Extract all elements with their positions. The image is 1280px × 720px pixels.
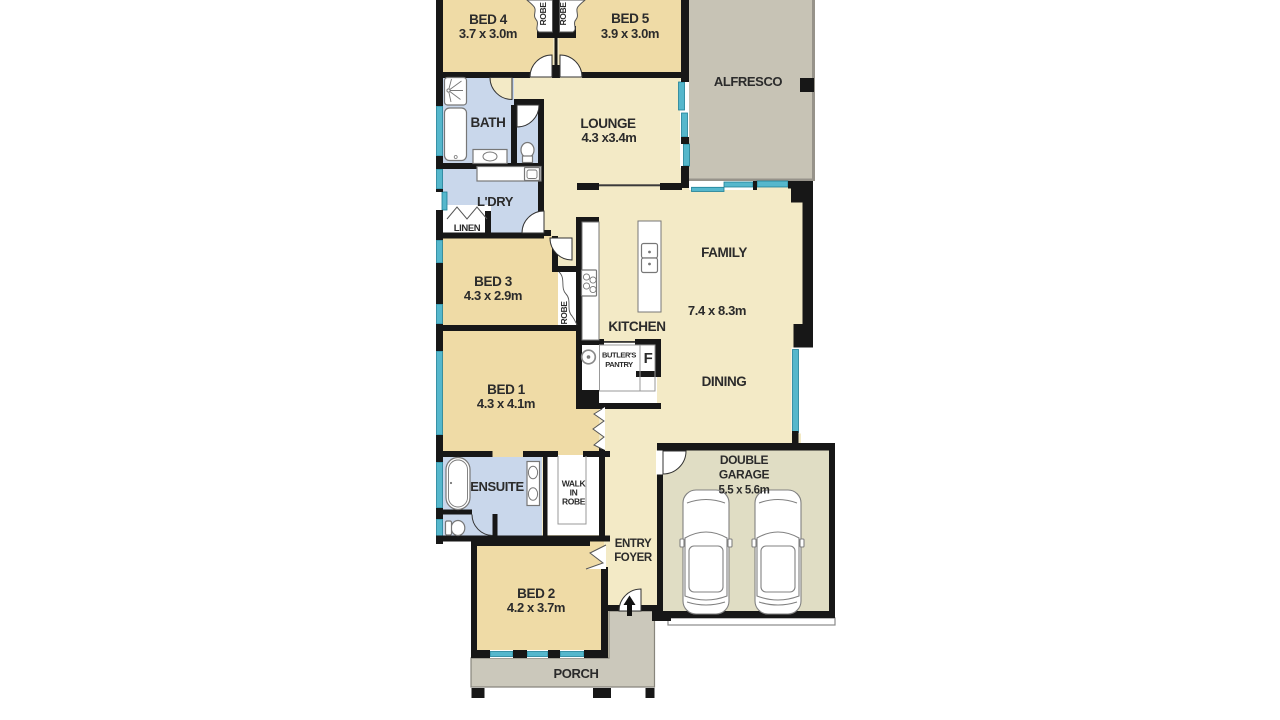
svg-text:BED 5: BED 5 xyxy=(611,11,650,26)
svg-text:ROBE: ROBE xyxy=(562,497,586,507)
svg-text:4.3 x 4.1m: 4.3 x 4.1m xyxy=(477,396,535,411)
svg-text:L'DRY: L'DRY xyxy=(477,194,514,209)
svg-text:BUTLER'S: BUTLER'S xyxy=(602,351,636,360)
svg-text:7.4 x 8.3m: 7.4 x 8.3m xyxy=(688,303,746,318)
svg-text:BED 4: BED 4 xyxy=(469,12,508,27)
svg-text:ROBE: ROBE xyxy=(559,301,569,325)
svg-text:KITCHEN: KITCHEN xyxy=(608,319,665,334)
svg-text:LOUNGE: LOUNGE xyxy=(580,116,636,131)
svg-text:5.5 x 5.6m: 5.5 x 5.6m xyxy=(719,485,770,497)
svg-text:BED 2: BED 2 xyxy=(517,586,555,601)
svg-text:3.9 x 3.0m: 3.9 x 3.0m xyxy=(601,26,659,41)
svg-text:4.3 x 2.9m: 4.3 x 2.9m xyxy=(464,288,522,303)
svg-text:ROBE: ROBE xyxy=(558,2,568,26)
svg-text:GARAGE: GARAGE xyxy=(719,468,770,482)
svg-text:4.3 x3.4m: 4.3 x3.4m xyxy=(582,130,637,145)
svg-text:DOUBLE: DOUBLE xyxy=(720,453,769,467)
svg-text:FOYER: FOYER xyxy=(614,552,653,564)
svg-text:LINEN: LINEN xyxy=(454,223,481,234)
svg-text:3.7 x 3.0m: 3.7 x 3.0m xyxy=(459,26,517,41)
svg-text:BED 3: BED 3 xyxy=(474,274,513,289)
svg-text:ENSUITE: ENSUITE xyxy=(470,479,524,494)
svg-text:ENTRY: ENTRY xyxy=(615,538,652,550)
svg-text:PANTRY: PANTRY xyxy=(605,360,633,369)
svg-text:ROBE: ROBE xyxy=(538,2,548,26)
svg-text:PORCH: PORCH xyxy=(554,666,599,681)
svg-text:ALFRESCO: ALFRESCO xyxy=(714,74,783,89)
svg-text:BATH: BATH xyxy=(471,115,506,130)
svg-text:F: F xyxy=(644,350,653,367)
svg-text:FAMILY: FAMILY xyxy=(701,245,747,260)
svg-text:4.2 x 3.7m: 4.2 x 3.7m xyxy=(507,600,565,615)
svg-text:BED 1: BED 1 xyxy=(487,382,526,397)
svg-text:DINING: DINING xyxy=(702,374,747,389)
